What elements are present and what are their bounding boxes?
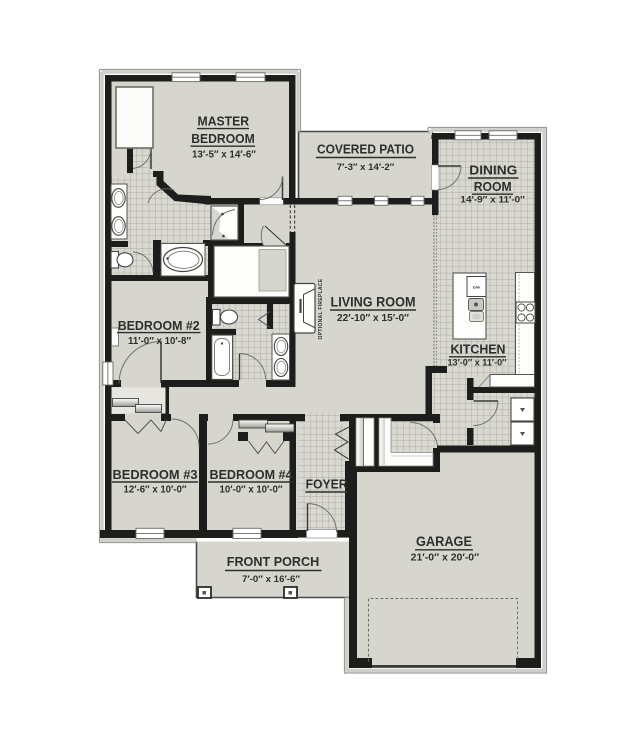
svg-text:13′-5″ x 14′-6″: 13′-5″ x 14′-6″ xyxy=(192,148,256,160)
svg-text:BEDROOM #4: BEDROOM #4 xyxy=(210,467,294,482)
svg-text:BEDROOM #3: BEDROOM #3 xyxy=(113,467,198,482)
svg-text:BEDROOM: BEDROOM xyxy=(191,131,255,146)
svg-text:COVERED PATIO: COVERED PATIO xyxy=(317,141,414,156)
svg-text:14′-9″ x 11′-0″: 14′-9″ x 11′-0″ xyxy=(460,195,525,206)
svg-text:b/w: b/w xyxy=(473,285,481,290)
svg-text:MASTER: MASTER xyxy=(198,114,250,129)
svg-text:10′-0″ x 10′-0″: 10′-0″ x 10′-0″ xyxy=(220,485,283,496)
svg-text:ROOM: ROOM xyxy=(474,179,512,194)
svg-text:LIVING ROOM: LIVING ROOM xyxy=(331,294,416,310)
svg-text:7′-3″ x 14′-2″: 7′-3″ x 14′-2″ xyxy=(337,162,395,173)
svg-text:GARAGE: GARAGE xyxy=(416,534,472,549)
svg-text:BEDROOM #2: BEDROOM #2 xyxy=(118,318,200,333)
svg-text:11′-0″ x 10′-8″: 11′-0″ x 10′-8″ xyxy=(128,336,191,347)
svg-text:21′-0″ x 20′-0″: 21′-0″ x 20′-0″ xyxy=(411,553,480,564)
svg-text:KITCHEN: KITCHEN xyxy=(451,342,506,357)
svg-text:OPTIONAL FIREPLACE: OPTIONAL FIREPLACE xyxy=(318,278,324,339)
svg-text:13′-0″ x 11′-0″: 13′-0″ x 11′-0″ xyxy=(448,358,508,368)
svg-text:DINING: DINING xyxy=(469,163,517,178)
svg-text:12′-6″ x 10′-0″: 12′-6″ x 10′-0″ xyxy=(124,485,187,496)
svg-text:22′-10″ x 15′-0″: 22′-10″ x 15′-0″ xyxy=(337,313,409,324)
svg-text:FOYER: FOYER xyxy=(306,477,349,492)
svg-text:7′-0″ x 16′-6″: 7′-0″ x 16′-6″ xyxy=(242,574,301,584)
svg-text:FRONT PORCH: FRONT PORCH xyxy=(227,554,320,569)
